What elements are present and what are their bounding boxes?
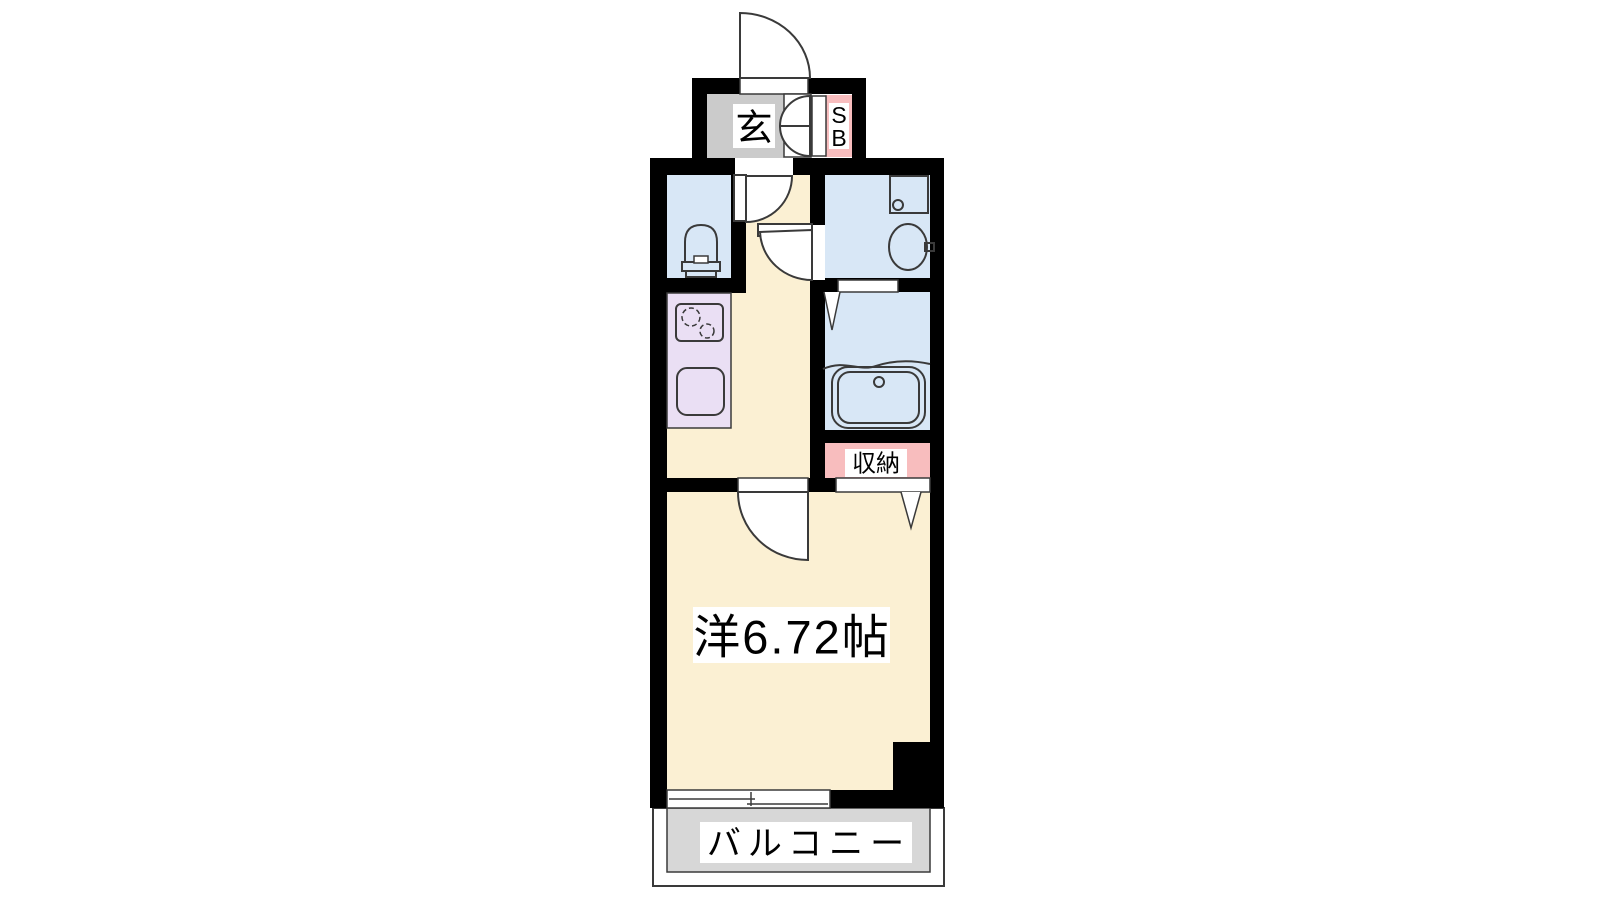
wall-segment	[810, 280, 825, 492]
wall-segment	[823, 430, 930, 443]
floor-plan-drawing: バルコニー	[0, 0, 1600, 900]
toilet-door-leaf	[734, 175, 746, 221]
pillar	[893, 742, 944, 808]
bathroom-door-threshold	[838, 280, 898, 292]
wall-segment	[808, 478, 838, 492]
storage-label: 収納	[852, 451, 900, 478]
kitchen-unit	[667, 293, 731, 428]
shoe-box-label-b: B	[831, 125, 846, 151]
floor-plan-canvas: バルコニー	[0, 0, 1600, 900]
toilet-lid-tab	[694, 256, 708, 263]
balcony-label: バルコニー	[707, 825, 911, 863]
balcony-window	[667, 790, 830, 808]
main-room-label: 洋6.72帖	[693, 611, 890, 664]
shoe-box-door-panel	[812, 96, 826, 156]
wall-segment	[930, 158, 944, 808]
wall-segment	[830, 790, 893, 808]
main-room-door-threshold	[738, 478, 808, 492]
wall-segment	[650, 278, 746, 293]
wall-segment	[852, 78, 866, 158]
wall-segment	[650, 158, 667, 808]
entrance-label: 玄	[736, 108, 773, 149]
wall-segment	[692, 78, 707, 158]
wall-segment	[810, 158, 825, 225]
entry-opening	[735, 158, 793, 175]
washroom-floor	[825, 175, 930, 278]
wall-segment	[650, 158, 944, 175]
front-door-threshold	[740, 78, 808, 94]
front-door-swing-icon	[740, 13, 810, 78]
balcony: バルコニー	[653, 808, 944, 886]
storage-door-threshold	[836, 478, 930, 492]
wall-segment	[667, 478, 738, 492]
